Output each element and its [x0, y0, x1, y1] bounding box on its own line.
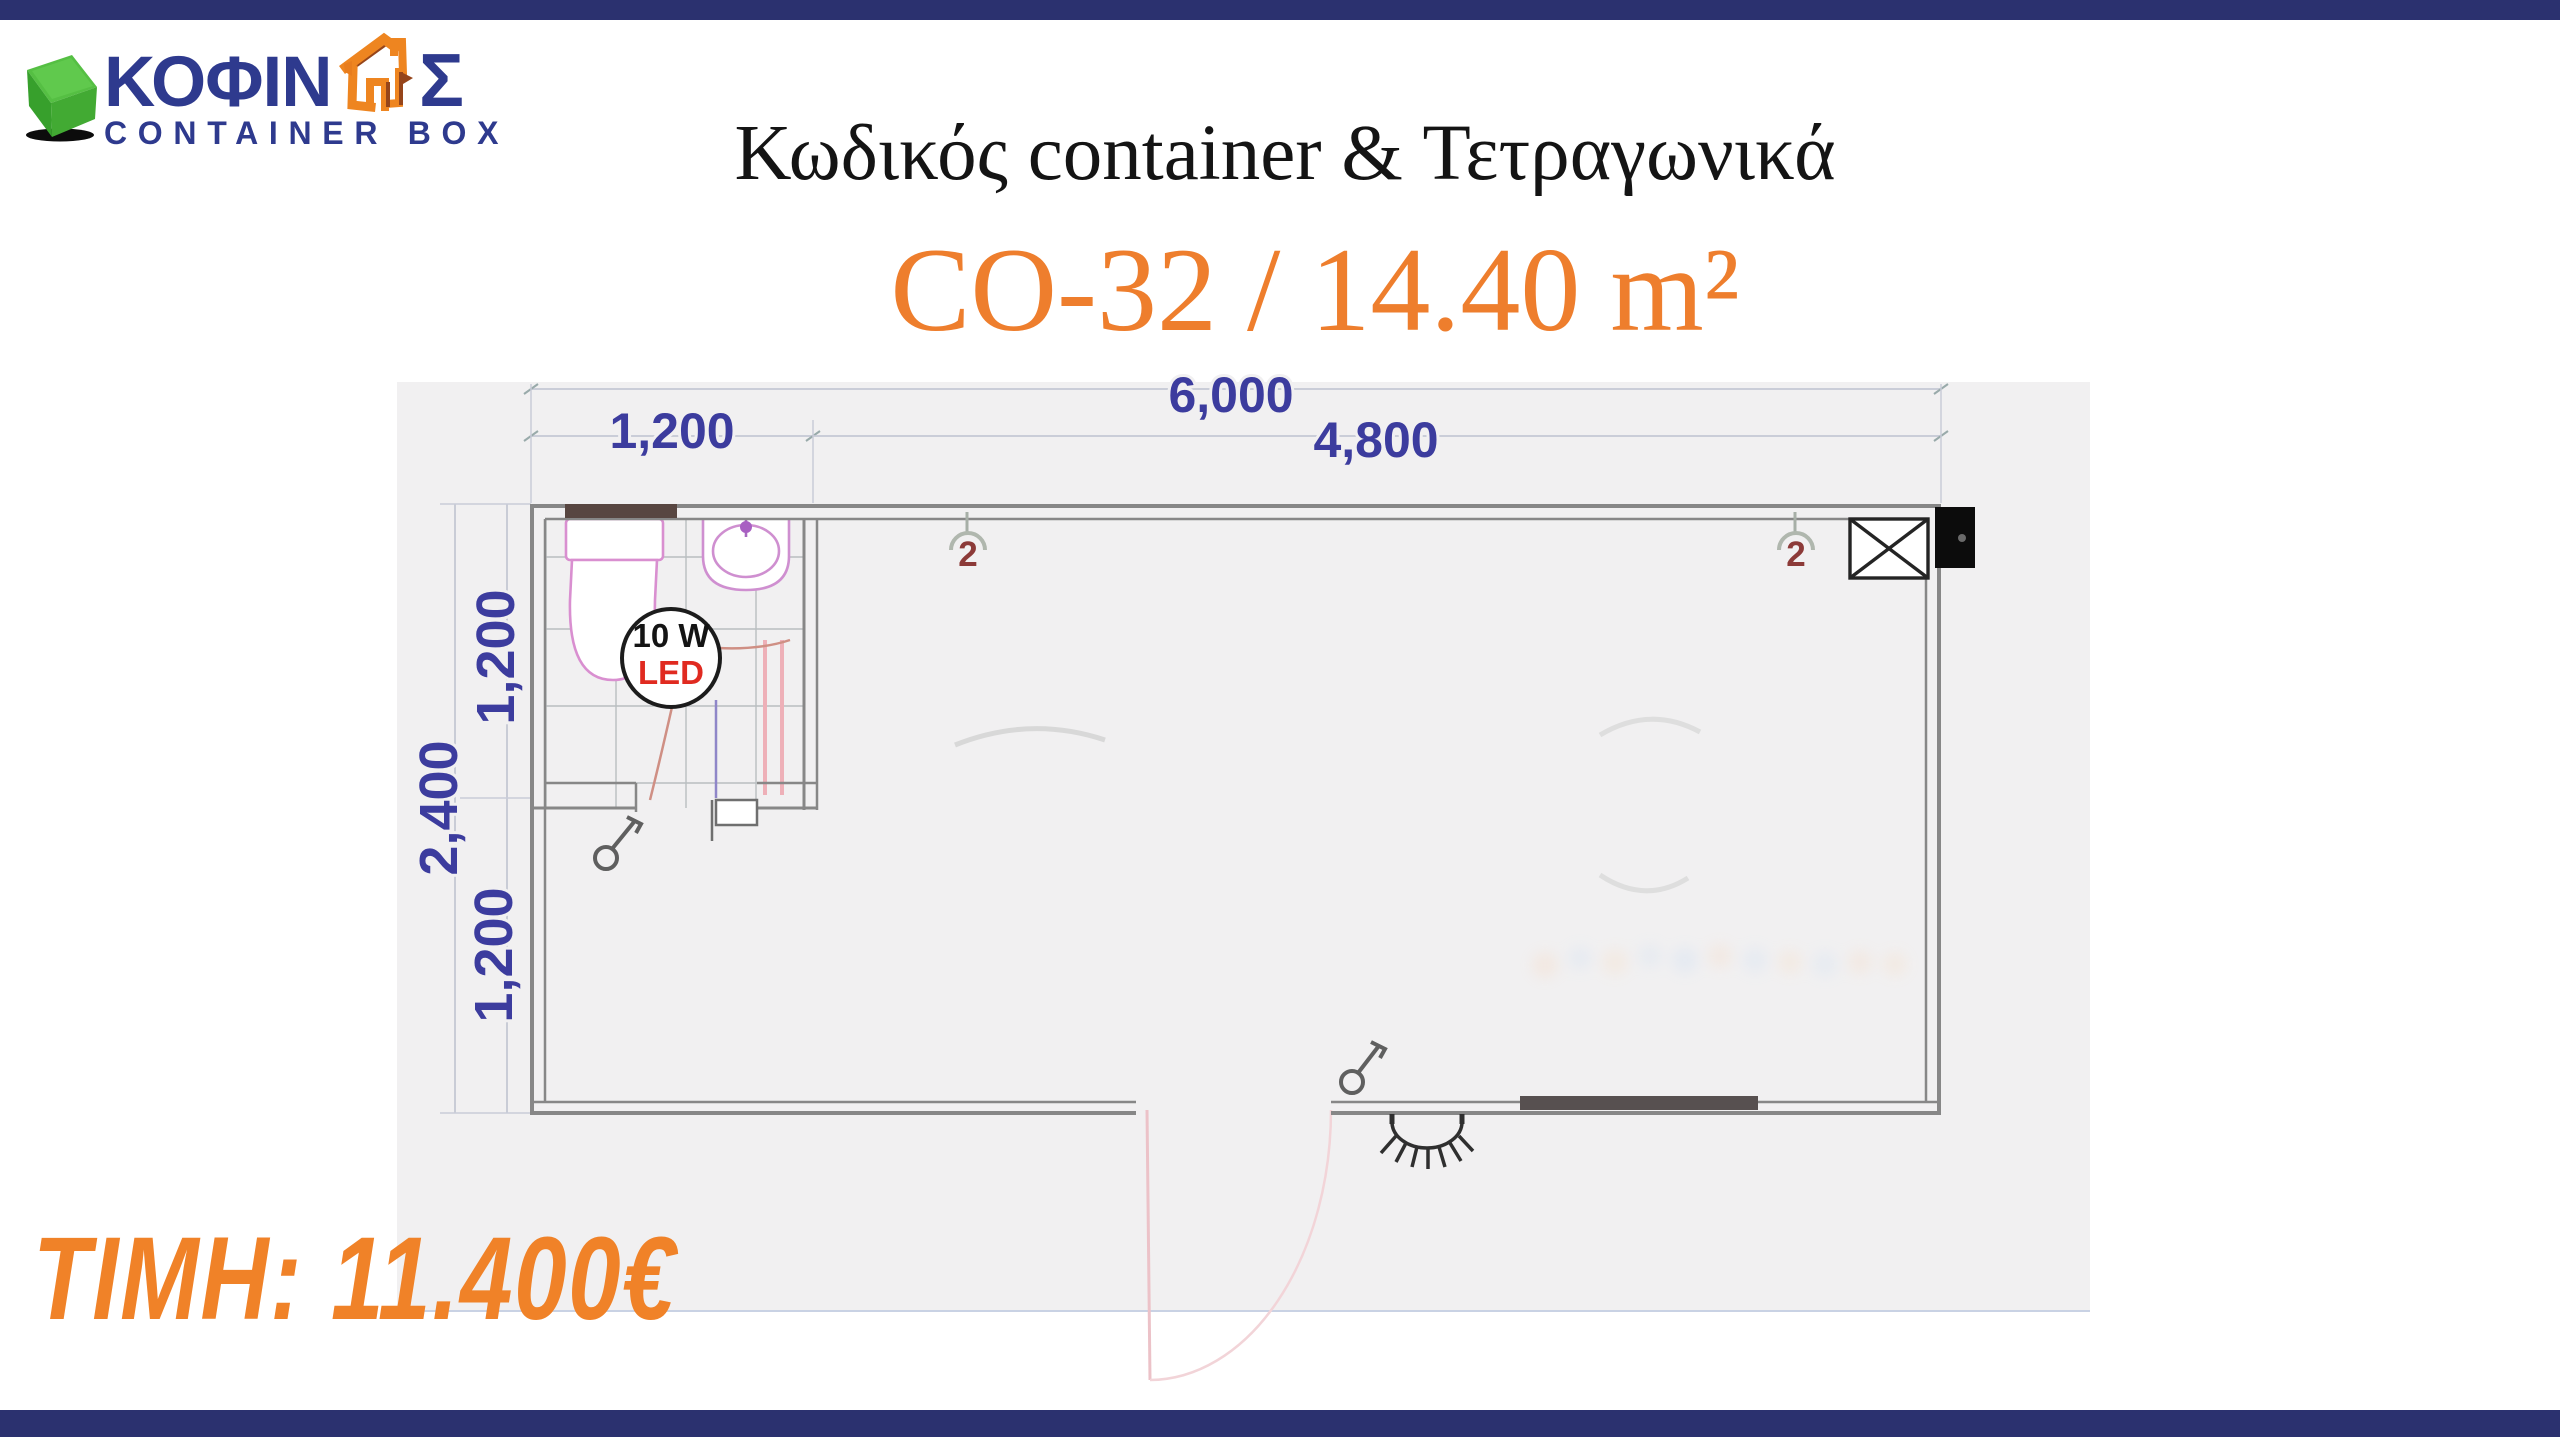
svg-text:6,000: 6,000 [1168, 370, 1293, 423]
svg-text:1,200: 1,200 [609, 403, 734, 459]
svg-text:2: 2 [958, 535, 977, 574]
svg-text:1,200: 1,200 [464, 887, 524, 1022]
svg-text:LED: LED [638, 654, 704, 691]
svg-text:2: 2 [1786, 535, 1805, 574]
svg-text:2,400: 2,400 [409, 740, 469, 875]
svg-text:1,200: 1,200 [466, 589, 526, 724]
svg-text:10 W: 10 W [632, 617, 710, 654]
svg-text:4,800: 4,800 [1313, 412, 1438, 468]
